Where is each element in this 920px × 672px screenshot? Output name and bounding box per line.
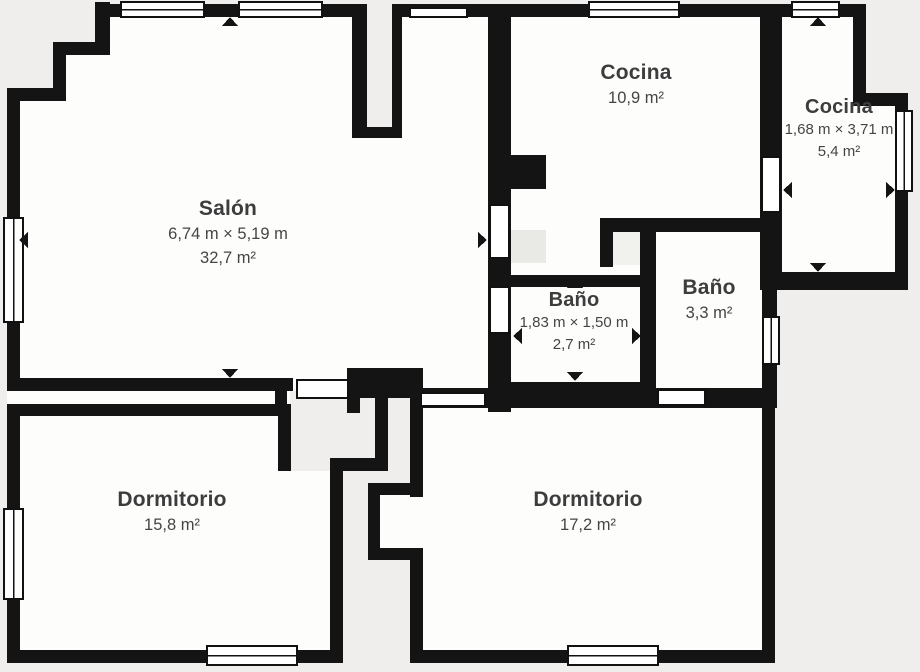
wall-segment <box>760 4 782 290</box>
door-opening <box>421 393 485 406</box>
wall-segment <box>7 378 293 391</box>
room-floor <box>110 16 488 42</box>
wall-segment <box>762 406 775 663</box>
room-floor <box>641 232 762 394</box>
wall-segment <box>330 458 343 663</box>
room-floor <box>20 101 488 391</box>
door-opening <box>762 157 780 212</box>
floor-plan-page: Salón 6,74 m × 5,19 m 32,7 m² Cocina 10,… <box>0 0 920 672</box>
room-floor <box>66 42 488 101</box>
wall-segment <box>347 368 423 398</box>
window <box>410 8 467 17</box>
room-floor <box>782 16 853 272</box>
wall-segment <box>352 4 367 138</box>
door-opening <box>658 390 705 405</box>
wall-segment <box>392 4 402 138</box>
wall-segment <box>7 404 291 416</box>
wall-segment <box>352 127 402 138</box>
door-swing <box>613 232 641 265</box>
wall-segment <box>511 155 546 189</box>
door-opening <box>490 205 509 258</box>
door-opening <box>297 380 348 398</box>
wall-segment <box>410 548 423 663</box>
wall-segment <box>853 4 866 103</box>
room-floor <box>278 471 330 650</box>
room-floor <box>511 16 760 218</box>
room-floor <box>20 414 278 650</box>
door-opening <box>490 287 509 333</box>
room-floor <box>423 406 762 650</box>
floor-plan <box>0 0 920 672</box>
wall-segment <box>777 272 908 290</box>
door-swing <box>511 230 546 263</box>
wall-segment <box>410 395 423 497</box>
wall-segment <box>600 218 782 232</box>
wall-segment <box>278 404 291 471</box>
room-floor <box>7 391 290 404</box>
room-floor <box>380 495 423 548</box>
light-well <box>367 0 392 127</box>
wall-segment <box>640 218 656 394</box>
wall-segment <box>600 218 613 267</box>
